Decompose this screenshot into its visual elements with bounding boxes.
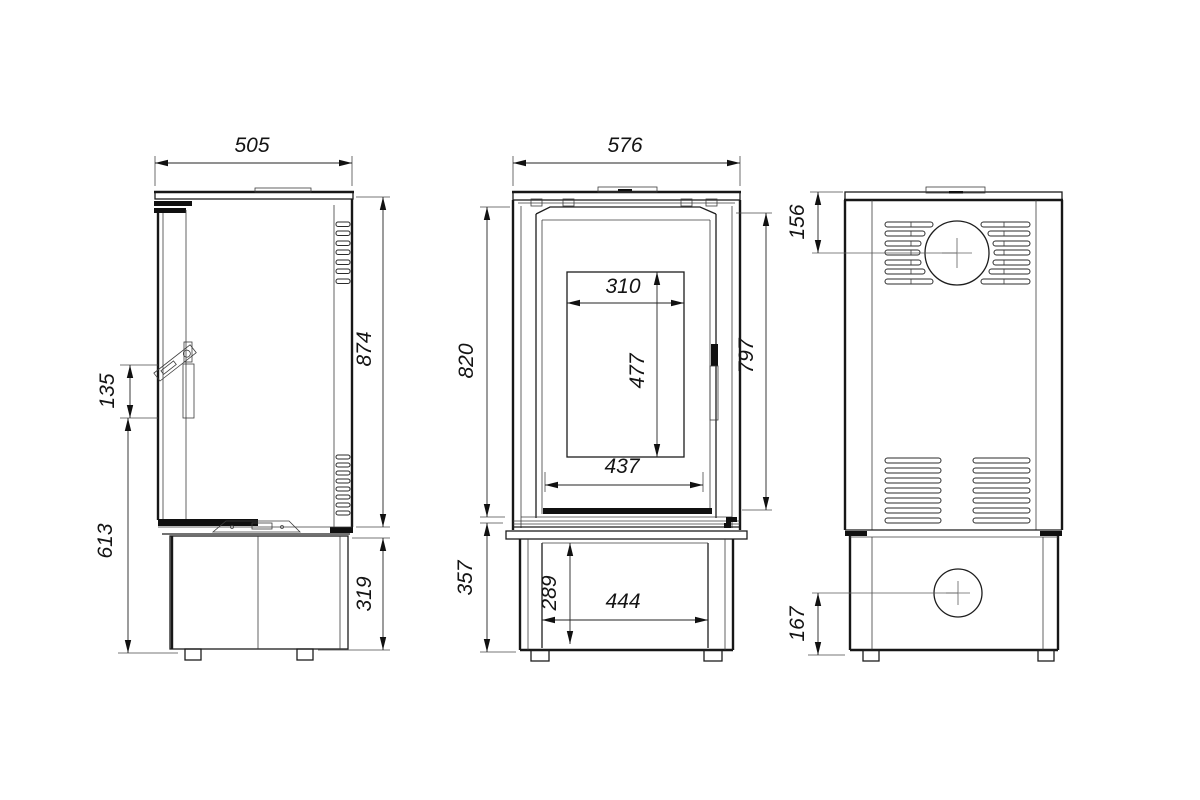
technical-drawing-page: 505 874 319 135 613 bbox=[0, 0, 1200, 800]
dim-label-front-door-height: 797 bbox=[735, 337, 758, 373]
front-foot-right bbox=[704, 650, 722, 661]
side-vent-slots-lower bbox=[336, 455, 350, 515]
front-door-bottom-band bbox=[543, 508, 712, 514]
rear-top-tab-mark bbox=[949, 191, 963, 194]
rear-shelf-band-left bbox=[845, 531, 867, 536]
rear-shelf-band-right bbox=[1040, 531, 1062, 536]
front-view: 576 820 357 797 310 bbox=[454, 134, 772, 661]
dim-front-glass-height: 477 bbox=[626, 272, 657, 457]
dim-label-side-base-height: 319 bbox=[353, 576, 376, 611]
side-front-step-2 bbox=[154, 208, 186, 213]
dim-label-front-door-opening-width: 437 bbox=[604, 455, 640, 478]
rear-foot-left bbox=[863, 650, 879, 661]
dim-label-front-base-opening-width: 444 bbox=[605, 590, 640, 613]
side-foot-back bbox=[297, 649, 313, 660]
side-view: 505 874 319 135 613 bbox=[94, 134, 390, 660]
side-body-bottom-band-right bbox=[330, 527, 353, 533]
side-body-bottom-band bbox=[158, 519, 258, 526]
dim-label-front-base-opening-height: 289 bbox=[538, 575, 561, 611]
dim-label-front-base-height: 357 bbox=[454, 559, 477, 595]
side-foot-front bbox=[185, 649, 201, 660]
dim-front-width: 576 bbox=[513, 134, 740, 186]
side-front-step-1 bbox=[154, 201, 192, 206]
dim-front-glass-width: 310 bbox=[567, 275, 684, 303]
side-door-handle bbox=[154, 342, 196, 418]
dim-label-front-glass-height: 477 bbox=[626, 352, 649, 388]
front-shelf bbox=[506, 531, 747, 539]
dim-label-front-body-height: 820 bbox=[455, 343, 478, 378]
dim-label-front-width: 576 bbox=[607, 134, 642, 157]
stove-dimension-drawing: 505 874 319 135 613 bbox=[0, 0, 1200, 800]
rear-view: 156 167 bbox=[786, 187, 1063, 661]
dim-side-handle-floor-height: 613 bbox=[94, 418, 178, 653]
dim-side-handle-length: 135 bbox=[96, 365, 158, 418]
dim-front-base-opening-height: 289 bbox=[538, 543, 570, 644]
dim-front-door-opening-width: 437 bbox=[545, 455, 703, 492]
rear-foot-right bbox=[1038, 650, 1054, 661]
rear-vent-slots-lower bbox=[885, 458, 1030, 523]
dim-label-side-handle-length: 135 bbox=[96, 373, 119, 408]
side-vent-slots-upper bbox=[336, 222, 350, 284]
dim-label-side-handle-floor-height: 613 bbox=[94, 523, 117, 558]
front-door-top-bevel bbox=[536, 207, 716, 214]
dim-front-body-height: 820 bbox=[455, 207, 510, 517]
dim-label-side-width: 505 bbox=[234, 134, 269, 157]
front-door-handle bbox=[710, 366, 718, 420]
dim-side-body-height: 874 bbox=[353, 197, 390, 527]
dim-label-front-glass-width: 310 bbox=[605, 275, 640, 298]
front-foot-left bbox=[531, 650, 549, 661]
front-top-tab-mark bbox=[618, 189, 632, 192]
dim-side-base-height: 319 bbox=[318, 538, 390, 650]
dim-label-rear-inlet-offset: 167 bbox=[786, 605, 809, 641]
dim-front-base-height: 357 bbox=[454, 523, 516, 652]
front-door-latch bbox=[711, 344, 718, 366]
dim-label-rear-flue-offset: 156 bbox=[786, 204, 809, 239]
dim-side-width: 505 bbox=[155, 134, 352, 186]
dim-front-base-opening-width: 444 bbox=[542, 590, 708, 620]
dim-label-side-body-height: 874 bbox=[353, 331, 376, 366]
side-base-box bbox=[170, 536, 348, 649]
